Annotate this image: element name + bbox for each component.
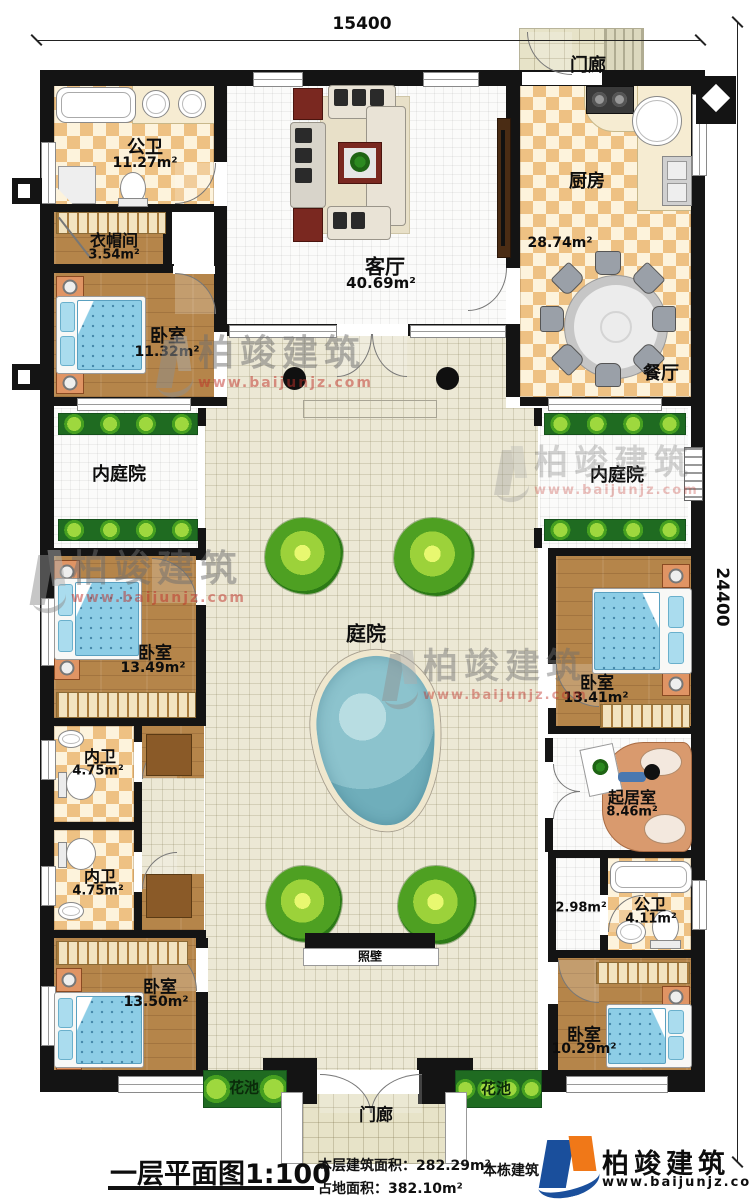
pillow (58, 584, 73, 616)
floor-plan: 15400 24400 门廊 公卫 11.27m² 衣帽间 3.54m² 客厅 … (0, 0, 750, 1203)
hedge (544, 519, 686, 541)
hedge (58, 519, 198, 541)
floor-area-line: 本层建筑面积：282.29m² (318, 1155, 491, 1175)
tv-cabinet (497, 118, 511, 258)
wall-stub3 (534, 408, 542, 426)
wall-bedroom2-top (54, 548, 206, 556)
door-gap-bath-top (214, 162, 227, 206)
floor-area-value: 282.29m² (416, 1158, 491, 1174)
wall-between-baths (54, 822, 134, 830)
tree (265, 518, 343, 594)
vent-inner (18, 370, 30, 384)
window-left-3 (41, 740, 56, 780)
pillow (58, 1030, 73, 1060)
wall-stub2 (198, 528, 206, 548)
sofa-cushion (295, 128, 312, 143)
pillow (668, 1036, 684, 1060)
room-label-flowerpool-left: 花池 (229, 1077, 259, 1098)
toilet-tank (118, 198, 148, 207)
wardrobe-rack (596, 962, 690, 984)
room-area-hall: 2.98m² (555, 901, 606, 916)
pillow (58, 998, 73, 1028)
sofa-cushion (295, 148, 312, 163)
dim-height-label: 24400 (712, 567, 732, 626)
room-area-bedroom1: 11.32m² (134, 344, 199, 360)
column (436, 367, 459, 390)
sink (58, 730, 84, 748)
land-area-line: 占地面积：382.10m² (318, 1178, 463, 1198)
room-label-flowerpool-right: 花池 (481, 1078, 511, 1099)
plant (350, 152, 370, 172)
wall-stub4 (534, 528, 542, 548)
pillow (668, 1010, 684, 1034)
wall-bedroom3-top (548, 548, 691, 556)
sink-basin (667, 183, 687, 202)
porch-pillar (445, 1092, 467, 1164)
sofa-cushion (370, 89, 384, 106)
nightstand (56, 372, 84, 394)
sofa-cushion (351, 212, 365, 229)
room-area-bath-top: 11.27m² (112, 155, 177, 171)
hedge (544, 413, 686, 435)
wall-bedroom5-top (548, 950, 691, 958)
wall-bedroom4-top (54, 930, 206, 938)
window-bedroom5-south (566, 1076, 668, 1093)
kitchen-round-table (632, 96, 682, 146)
door-leaf (146, 874, 192, 918)
room-label-innercourt-right: 内庭院 (590, 461, 644, 487)
room-area-sittingroom: 8.46m² (606, 805, 657, 820)
mattress (594, 592, 660, 670)
land-area-label: 占地面积： (318, 1181, 388, 1197)
toilet-tank (650, 940, 681, 949)
sofa-cushion (333, 212, 347, 229)
wall-left (40, 70, 54, 1092)
window-left-1 (41, 142, 56, 204)
dim-width-label: 15400 (332, 14, 391, 34)
screen-wall-black (305, 933, 435, 948)
sink (142, 90, 170, 118)
wall-left-column (214, 84, 227, 332)
window-left-4 (41, 866, 56, 906)
room-area-bedroom5: 10.29m² (551, 1041, 616, 1057)
nightstand (662, 672, 690, 696)
sofa-cushion (295, 168, 312, 183)
door-gap-dining (506, 268, 520, 324)
window-top-1 (253, 72, 303, 87)
pillow (60, 336, 75, 366)
hedge (58, 413, 198, 435)
window-dining-south (548, 398, 662, 411)
person-body (618, 772, 646, 782)
wardrobe-rack (600, 704, 690, 728)
window-right-2 (692, 880, 707, 930)
room-area-livingroom: 40.69m² (346, 274, 416, 292)
nightstand (56, 968, 82, 992)
column (283, 367, 306, 390)
room-label-dining: 餐厅 (643, 359, 679, 385)
room-area-bath-inner1: 4.75m² (72, 764, 123, 779)
door-gap-bedroom5 (548, 962, 558, 1004)
pillow (60, 302, 75, 332)
room-area-cloakroom: 3.54m² (88, 248, 139, 263)
pillow (668, 596, 684, 628)
bathtub (610, 861, 692, 893)
dim-line-top (36, 40, 700, 41)
room-area-bedroom2: 13.49m² (120, 660, 185, 676)
step (303, 400, 437, 418)
door-gap-bath-inner2 (134, 852, 142, 892)
pillow (668, 632, 684, 664)
room-label-courtyard: 庭院 (346, 618, 386, 647)
room-label-screenwall: 照壁 (358, 948, 382, 965)
room-area-bedroom4: 13.50m² (123, 994, 188, 1010)
tree (266, 866, 342, 942)
window-living-south-1 (229, 325, 337, 338)
nightstand (662, 564, 690, 588)
room-area-bath-inner2: 4.75m² (72, 884, 123, 899)
side-table (293, 208, 323, 242)
sink-basin (667, 161, 687, 180)
room-area-bedroom3: 13.41m² (563, 690, 628, 706)
mattress (75, 582, 139, 656)
wall-under-cloakroom (54, 264, 174, 273)
door-gap-bedroom4 (196, 948, 208, 992)
door-gap-bedroom3 (548, 664, 556, 708)
flower (591, 758, 610, 777)
door-leaf (146, 734, 192, 776)
room-area-kitchen: 28.74m² (527, 235, 592, 251)
room-label-kitchen: 厨房 (569, 167, 605, 193)
vent-inner (18, 184, 30, 198)
room-label-porch-bottom: 门廊 (359, 1101, 393, 1126)
person-head (644, 764, 660, 780)
room-label-porch-top: 门廊 (570, 51, 606, 77)
land-area-value: 382.10m² (388, 1181, 463, 1197)
door-gap-sittingroom (545, 762, 553, 818)
radiator (684, 447, 703, 501)
wardrobe-rack (56, 692, 196, 718)
room-area-bath-bottom: 4.11m² (625, 912, 676, 927)
room-label-innercourt-left: 内庭院 (92, 460, 146, 486)
wardrobe-rack (56, 941, 188, 965)
side-table (293, 88, 323, 120)
door-gap-bedroom2 (196, 560, 206, 605)
chair (595, 251, 621, 275)
sink (58, 902, 84, 920)
brand-website: www.baijunjz.com (602, 1175, 750, 1190)
title-underline (108, 1186, 314, 1190)
chair (595, 363, 621, 387)
tree (394, 518, 474, 596)
chair (540, 306, 564, 332)
mattress (608, 1008, 666, 1064)
door-gap-bath-inner1 (134, 742, 142, 782)
wall-stub1 (198, 408, 206, 426)
brand-logo-icon (543, 1136, 595, 1192)
sofa-cushion (334, 89, 348, 106)
sofa-cushion (352, 89, 366, 106)
bathtub (56, 87, 136, 123)
wall-right (691, 70, 705, 1092)
window-bedroom4-south (118, 1076, 210, 1093)
nightstand (56, 276, 84, 298)
chair (652, 306, 676, 332)
window-top-2 (423, 72, 479, 87)
stove (586, 86, 634, 114)
sink (178, 90, 206, 118)
window-bedroom1-south (77, 398, 191, 411)
kitchen-sink (662, 156, 692, 206)
building-area-line: 本栋建筑 (483, 1160, 539, 1180)
dim-line-right (737, 22, 738, 1162)
floor-area-label: 本层建筑面积： (318, 1158, 416, 1174)
mattress (77, 300, 142, 370)
window-living-south-2 (410, 325, 506, 338)
wall-bedroom2-bottom (54, 718, 206, 726)
pillow (58, 620, 73, 652)
